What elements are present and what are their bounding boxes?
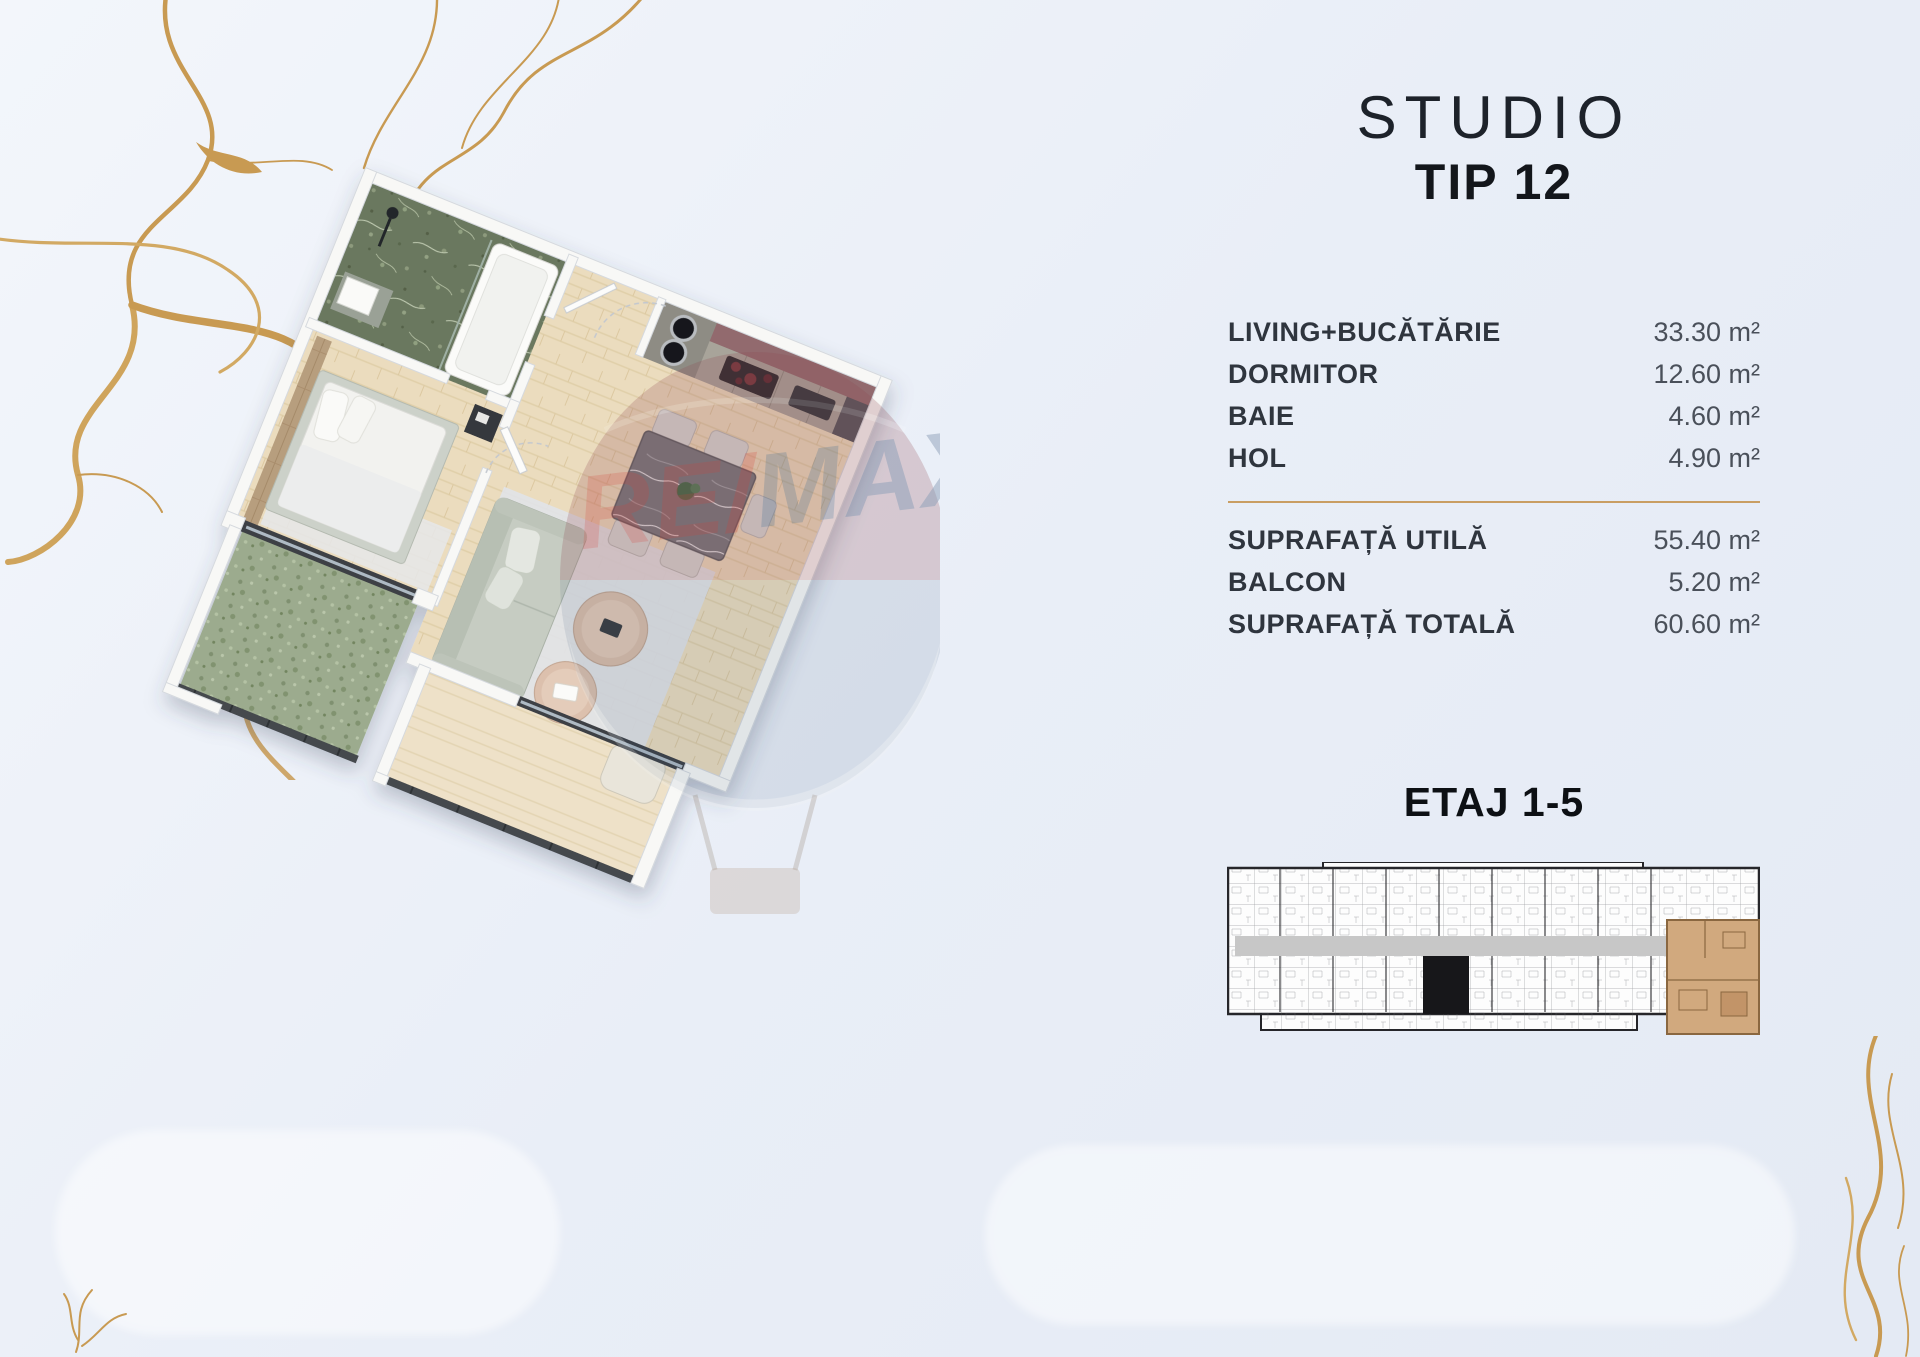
room-value: 12.60 m² <box>1653 359 1760 390</box>
room-value: 4.60 m² <box>1668 401 1760 432</box>
room-label: LIVING+BUCĂTĂRIE <box>1228 317 1501 348</box>
background-blob-right <box>985 1145 1795 1325</box>
total-value: 55.40 m² <box>1653 525 1760 556</box>
total-value: 60.60 m² <box>1653 609 1760 640</box>
room-label: BAIE <box>1228 401 1295 432</box>
gold-divider <box>1228 501 1760 503</box>
building-plan-map <box>1227 862 1760 1040</box>
total-label: BALCON <box>1228 567 1347 598</box>
area-row: BAIE 4.60 m² <box>1228 395 1760 437</box>
area-row: HOL 4.90 m² <box>1228 437 1760 479</box>
room-label: DORMITOR <box>1228 359 1379 390</box>
total-label: SUPRAFAȚĂ UTILĂ <box>1228 525 1488 556</box>
highlighted-unit <box>1667 920 1759 1034</box>
area-table: LIVING+BUCĂTĂRIE 33.30 m² DORMITOR 12.60… <box>1228 311 1760 645</box>
room-value: 33.30 m² <box>1653 317 1760 348</box>
floor-heading: ETAJ 1-5 <box>1228 779 1760 826</box>
total-label: SUPRAFAȚĂ TOTALĂ <box>1228 609 1516 640</box>
floorplan-3d-render: RE/MAX <box>20 50 940 1010</box>
gold-decoration-sprig <box>48 1282 158 1357</box>
room-label: HOL <box>1228 443 1287 474</box>
area-row: DORMITOR 12.60 m² <box>1228 353 1760 395</box>
title-line1: STUDIO <box>1178 86 1810 150</box>
stair-core <box>1423 956 1469 1014</box>
total-row: SUPRAFAȚĂ TOTALĂ 60.60 m² <box>1228 603 1760 645</box>
room-value: 4.90 m² <box>1668 443 1760 474</box>
title-line2: TIP 12 <box>1178 155 1810 209</box>
total-row: BALCON 5.20 m² <box>1228 561 1760 603</box>
gold-decoration-bottomright <box>1728 1036 1920 1357</box>
corridor <box>1235 936 1667 956</box>
page-title: STUDIO TIP 12 <box>1178 86 1810 209</box>
total-row: SUPRAFAȚĂ UTILĂ 55.40 m² <box>1228 519 1760 561</box>
area-row: LIVING+BUCĂTĂRIE 33.30 m² <box>1228 311 1760 353</box>
total-value: 5.20 m² <box>1668 567 1760 598</box>
